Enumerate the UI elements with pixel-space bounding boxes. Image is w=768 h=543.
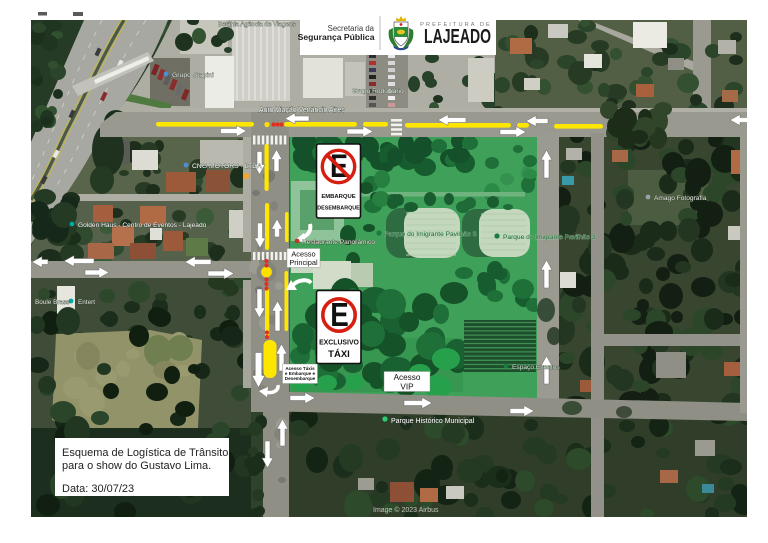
svg-text:Parque do Imigrante Pavilhão 3: Parque do Imigrante Pavilhão 3 bbox=[384, 231, 477, 238]
svg-text:Grupo Stapini: Grupo Stapini bbox=[172, 72, 214, 79]
svg-text:Parque Histórico Municipal: Parque Histórico Municipal bbox=[391, 418, 475, 425]
svg-text:DESEMBARQUE: DESEMBARQUE bbox=[317, 206, 360, 212]
svg-text:Restaurante Panorâmico: Restaurante Panorâmico bbox=[302, 239, 375, 246]
svg-text:Grupo Rodoviário: Grupo Rodoviário bbox=[352, 88, 404, 95]
svg-text:Golden Haus - Centro de Evento: Golden Haus - Centro de Eventos - Lajead… bbox=[78, 222, 207, 229]
svg-text:Image © 2023 Airbus: Image © 2023 Airbus bbox=[373, 506, 439, 514]
svg-text:Esquema de Logística de Trânsi: Esquema de Logística de Trânsito bbox=[62, 447, 228, 459]
svg-text:para o show do Gustavo Lima.: para o show do Gustavo Lima. bbox=[62, 460, 211, 472]
svg-text:Segurança Pública: Segurança Pública bbox=[298, 32, 375, 42]
svg-text:EMBARQUE: EMBARQUE bbox=[321, 194, 355, 200]
svg-text:Auto Viação Venâncio Aires: Auto Viação Venâncio Aires bbox=[259, 107, 345, 114]
svg-text:VIP: VIP bbox=[400, 383, 414, 392]
svg-text:TÁXI: TÁXI bbox=[328, 349, 350, 360]
svg-text:Betânia Agência de Viagens: Betânia Agência de Viagens bbox=[218, 21, 295, 28]
svg-text:Entert: Entert bbox=[78, 299, 95, 306]
svg-text:EXCLUSIVO: EXCLUSIVO bbox=[319, 340, 359, 347]
svg-text:Desembarque: Desembarque bbox=[285, 376, 316, 381]
svg-text:Boule Brass: Boule Brass bbox=[35, 299, 69, 306]
svg-text:LAJEADO: LAJEADO bbox=[424, 26, 491, 48]
svg-text:E: E bbox=[330, 296, 349, 333]
svg-text:Principal: Principal bbox=[289, 258, 318, 267]
svg-text:Espaço Eventos: Espaço Eventos bbox=[512, 364, 560, 371]
svg-text:Data: 30/07/23: Data: 30/07/23 bbox=[62, 483, 134, 495]
svg-text:Amago Fotografia: Amago Fotografia bbox=[654, 195, 707, 202]
svg-text:CNG MOTORS - LTDA: CNG MOTORS - LTDA bbox=[192, 163, 262, 170]
svg-text:Acesso: Acesso bbox=[394, 373, 421, 382]
svg-text:Parque do Imigrante Pavilhão 3: Parque do Imigrante Pavilhão 3 bbox=[503, 234, 596, 241]
